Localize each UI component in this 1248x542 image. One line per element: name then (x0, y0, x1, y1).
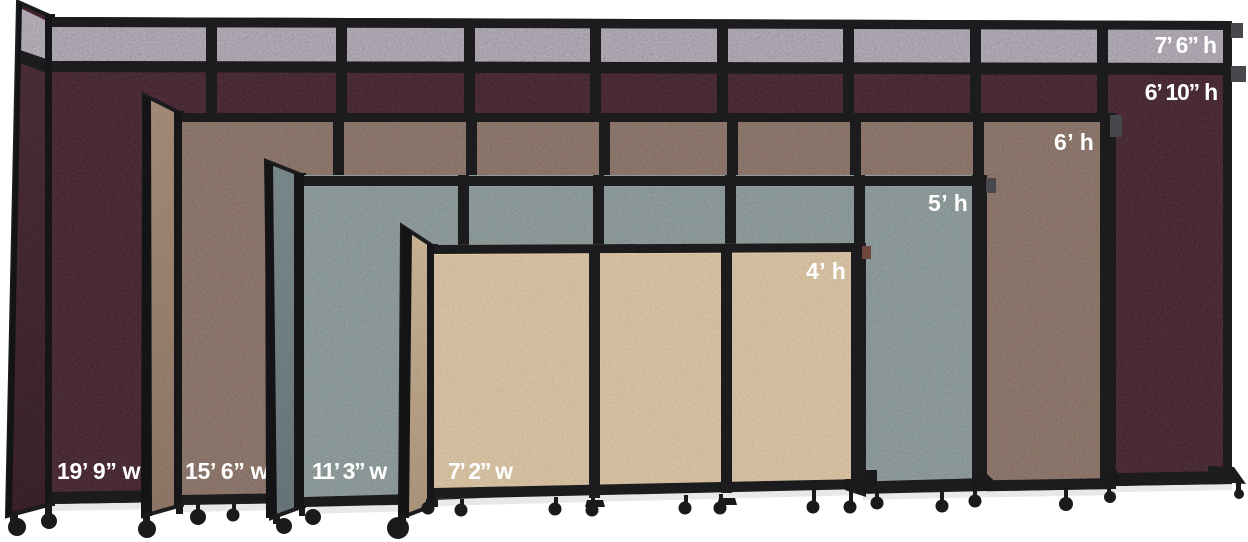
svg-text:7’ 2” w: 7’ 2” w (448, 458, 513, 484)
svg-text:6’ 10” h: 6’ 10” h (1145, 79, 1217, 105)
svg-text:5’ h: 5’ h (928, 190, 968, 216)
svg-text:19’ 9” w: 19’ 9” w (57, 458, 141, 484)
svg-text:15’ 6” w: 15’ 6” w (185, 458, 269, 484)
svg-text:7’ 6” h: 7’ 6” h (1155, 32, 1216, 58)
svg-text:11’ 3” w: 11’ 3” w (312, 458, 387, 484)
svg-text:6’ h: 6’ h (1054, 129, 1094, 155)
svg-text:4’ h: 4’ h (806, 258, 846, 284)
